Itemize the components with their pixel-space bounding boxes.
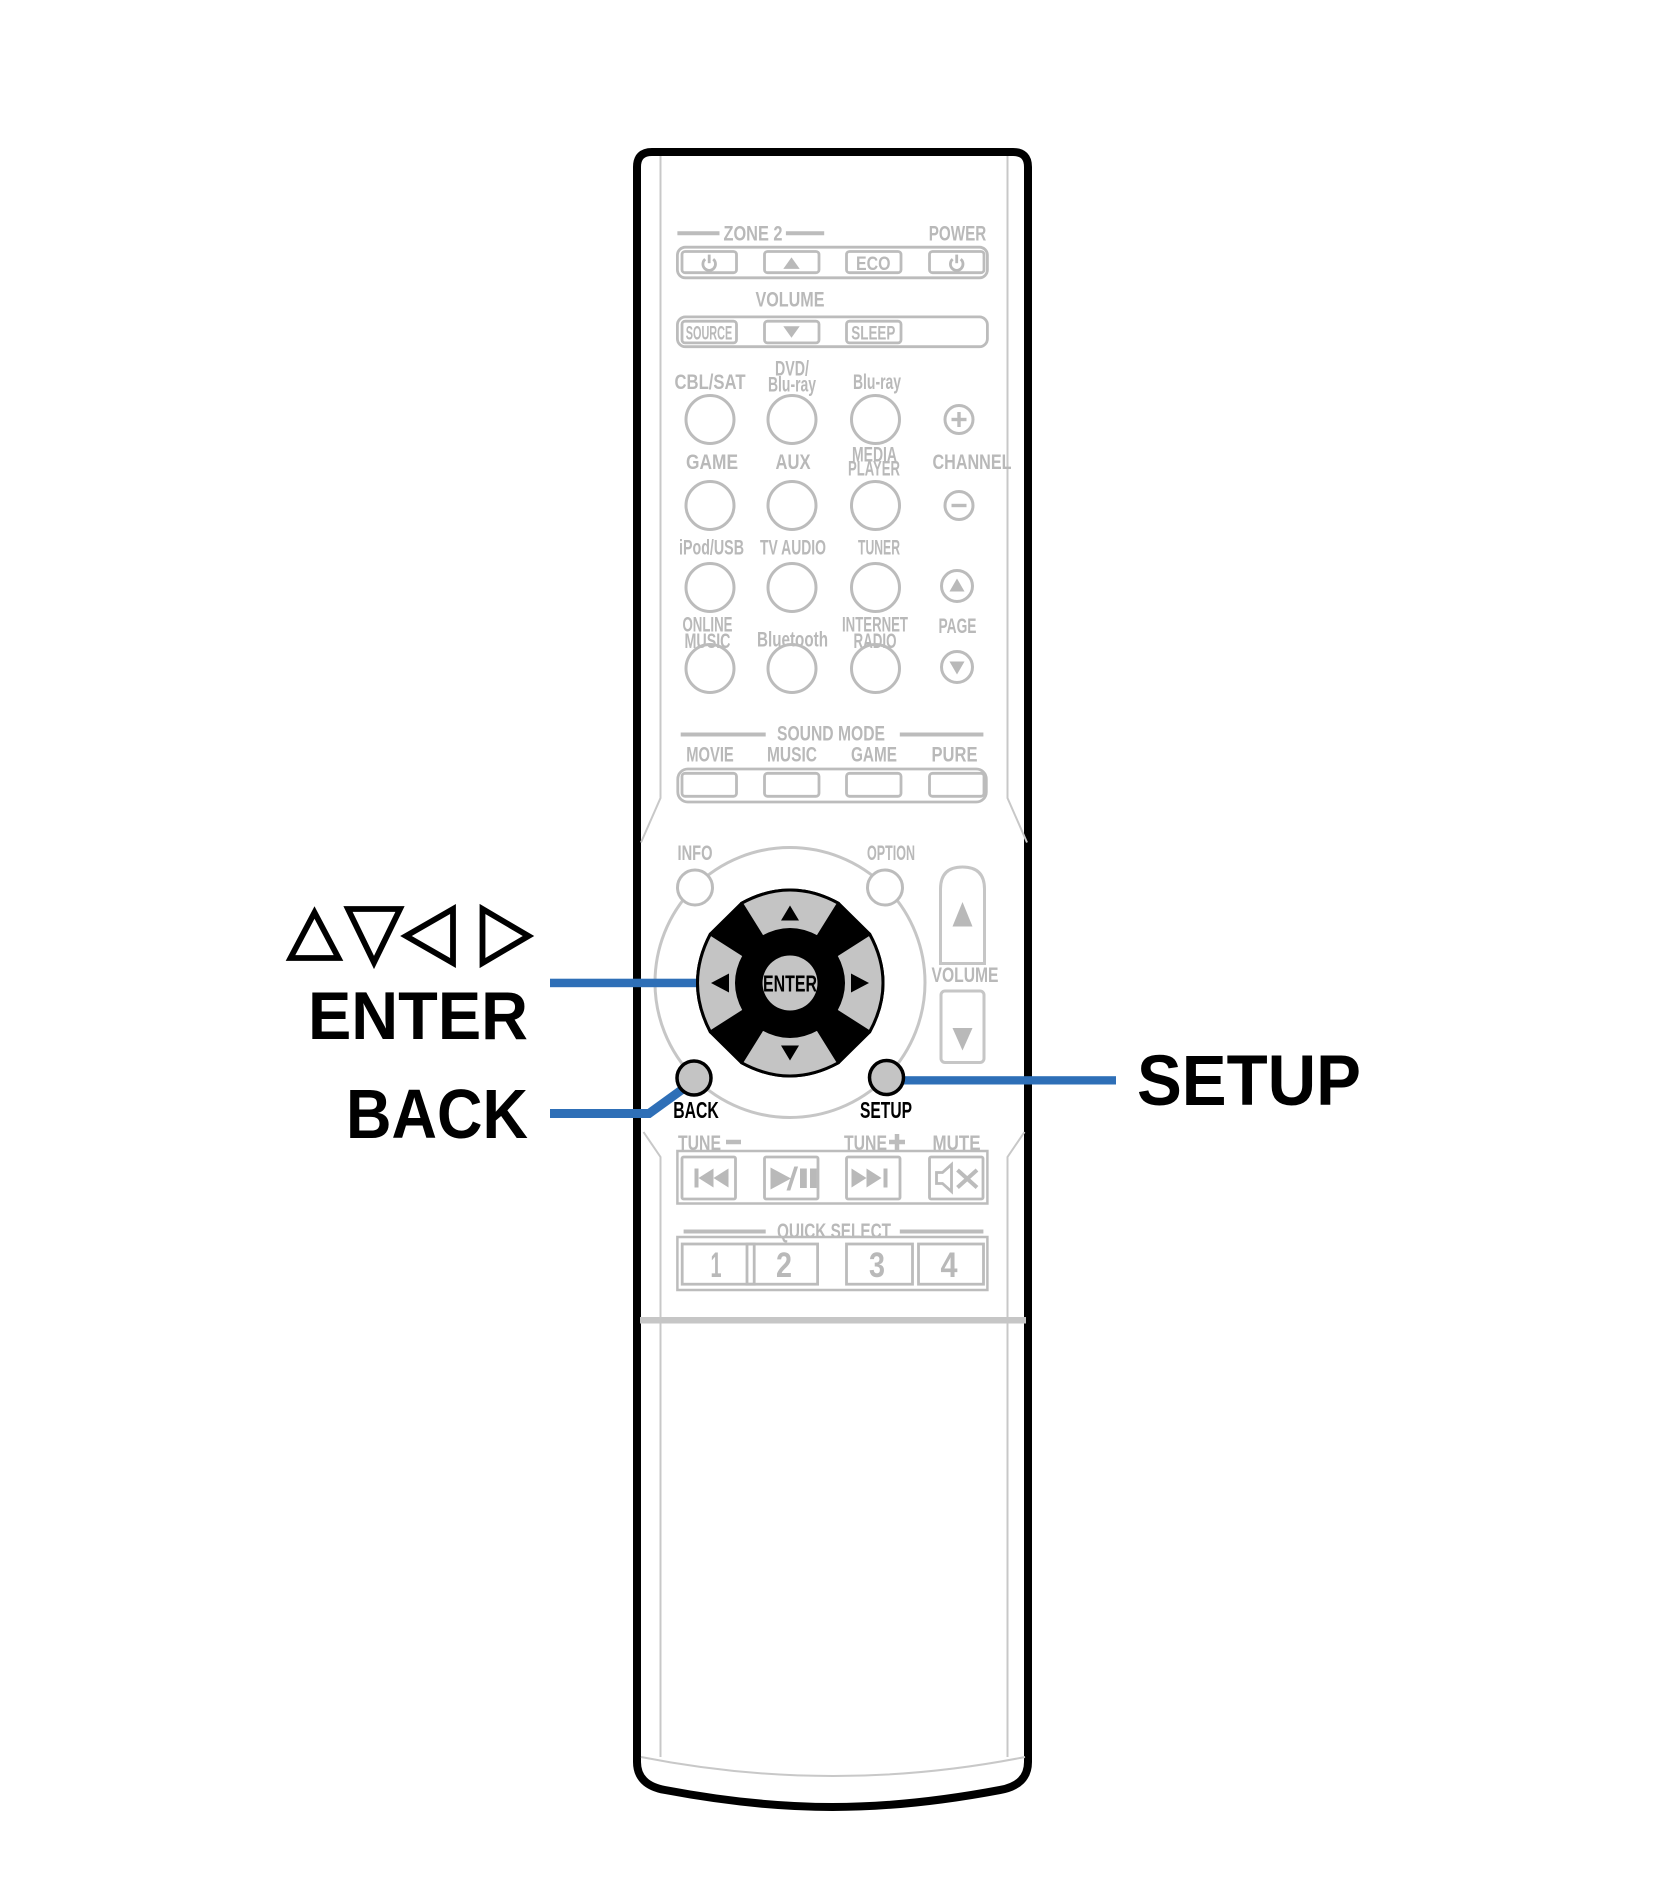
svg-text:SOUND MODE: SOUND MODE (777, 723, 885, 746)
svg-text:TV AUDIO: TV AUDIO (760, 537, 826, 560)
svg-text:PAGE: PAGE (939, 615, 977, 638)
svg-text:2: 2 (776, 1246, 792, 1285)
svg-text:BACK: BACK (346, 1075, 528, 1153)
svg-text:iPod/USB: iPod/USB (679, 537, 744, 560)
svg-text:ECO: ECO (856, 253, 891, 275)
svg-text:4: 4 (941, 1246, 958, 1285)
svg-text:PLAYER: PLAYER (848, 458, 900, 481)
svg-text:3: 3 (869, 1246, 885, 1285)
svg-text:Blu-ray: Blu-ray (853, 371, 901, 394)
svg-text:SOURCE: SOURCE (686, 323, 733, 344)
svg-text:CBL/SAT: CBL/SAT (675, 371, 746, 394)
svg-text:PURE: PURE (932, 744, 978, 767)
svg-text:MUSIC: MUSIC (767, 744, 817, 767)
svg-text:ENTER: ENTER (763, 971, 817, 997)
svg-text:SLEEP: SLEEP (851, 323, 895, 344)
svg-text:OPTION: OPTION (867, 842, 915, 865)
svg-text:ENTER: ENTER (308, 978, 528, 1054)
svg-text:INFO: INFO (678, 842, 713, 865)
svg-text:POWER: POWER (929, 223, 987, 246)
svg-text:SETUP: SETUP (860, 1097, 912, 1123)
svg-text:MOVIE: MOVIE (686, 744, 734, 767)
svg-text:VOLUME: VOLUME (932, 964, 999, 987)
svg-text:SETUP: SETUP (1137, 1042, 1361, 1121)
svg-text:ZONE 2: ZONE 2 (724, 223, 783, 246)
svg-text:TUNER: TUNER (858, 537, 900, 560)
svg-text:CHANNEL: CHANNEL (933, 451, 1012, 474)
svg-text:GAME: GAME (851, 744, 897, 767)
svg-text:GAME: GAME (686, 451, 738, 474)
svg-text:QUICK SELECT: QUICK SELECT (777, 1220, 891, 1243)
svg-text:Bluetooth: Bluetooth (757, 629, 828, 652)
svg-text:Blu-ray: Blu-ray (768, 374, 816, 397)
svg-text:BACK: BACK (673, 1097, 719, 1123)
svg-text:1: 1 (711, 1246, 722, 1285)
svg-text:AUX: AUX (776, 451, 811, 474)
svg-text:VOLUME: VOLUME (756, 289, 825, 312)
